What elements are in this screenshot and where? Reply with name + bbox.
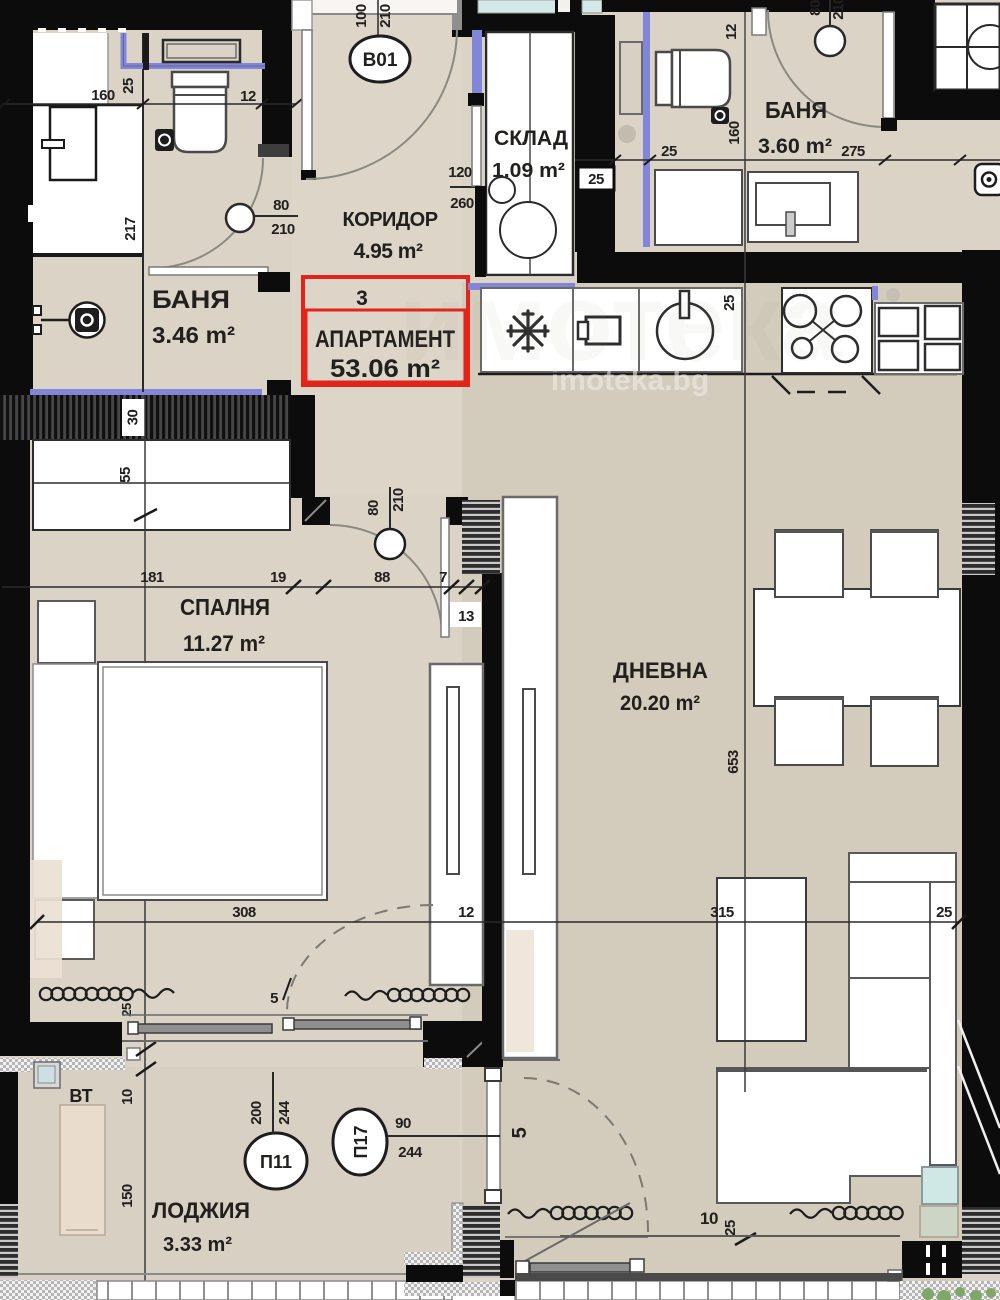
- svg-text:4.95 m²: 4.95 m²: [354, 240, 423, 263]
- svg-text:СКЛАД: СКЛАД: [494, 127, 568, 150]
- svg-text:10: 10: [700, 1209, 718, 1228]
- svg-text:B01: B01: [363, 50, 398, 71]
- svg-text:7: 7: [439, 569, 447, 586]
- svg-text:30: 30: [124, 410, 141, 426]
- svg-text:3.60 m²: 3.60 m²: [758, 135, 832, 158]
- svg-text:5: 5: [509, 1127, 531, 1138]
- svg-text:210: 210: [830, 0, 847, 20]
- svg-text:210: 210: [271, 221, 295, 238]
- svg-text:3.33 m²: 3.33 m²: [163, 1234, 232, 1256]
- svg-text:П17: П17: [351, 1126, 371, 1159]
- svg-text:210: 210: [390, 488, 407, 512]
- svg-text:11.27 m²: 11.27 m²: [183, 631, 265, 656]
- svg-text:КОРИДОР: КОРИДОР: [342, 209, 437, 231]
- svg-text:244: 244: [398, 1144, 423, 1161]
- svg-text:315: 315: [710, 904, 734, 921]
- svg-text:210: 210: [377, 4, 394, 28]
- svg-text:25: 25: [588, 171, 604, 188]
- svg-text:БАНЯ: БАНЯ: [152, 286, 230, 314]
- svg-text:25: 25: [722, 1220, 739, 1236]
- svg-text:100: 100: [353, 4, 370, 28]
- svg-text:5: 5: [270, 990, 278, 1007]
- svg-text:12: 12: [723, 24, 740, 40]
- svg-text:25: 25: [120, 78, 137, 94]
- svg-text:80: 80: [365, 500, 382, 516]
- svg-text:160: 160: [91, 87, 115, 104]
- svg-text:БАНЯ: БАНЯ: [765, 97, 827, 123]
- svg-text:80: 80: [807, 0, 824, 16]
- svg-text:90: 90: [395, 1115, 411, 1132]
- svg-text:275: 275: [841, 143, 865, 160]
- svg-text:ДНЕВНА: ДНЕВНА: [613, 658, 708, 683]
- svg-text:3: 3: [356, 287, 368, 310]
- svg-text:3.46 m²: 3.46 m²: [152, 322, 235, 348]
- svg-text:10: 10: [119, 1089, 136, 1105]
- svg-text:25: 25: [661, 143, 677, 160]
- svg-text:13: 13: [458, 608, 474, 625]
- svg-text:imoteka.bg: imoteka.bg: [551, 364, 709, 397]
- svg-text:12: 12: [240, 88, 256, 105]
- svg-text:80: 80: [273, 197, 289, 214]
- svg-text:ВТ: ВТ: [69, 1086, 92, 1106]
- svg-text:217: 217: [122, 217, 139, 241]
- svg-text:150: 150: [119, 1184, 136, 1208]
- svg-text:244: 244: [276, 1100, 293, 1125]
- svg-text:П11: П11: [260, 1152, 292, 1172]
- svg-text:25: 25: [936, 904, 952, 921]
- svg-text:260: 260: [450, 195, 474, 212]
- svg-text:200: 200: [248, 1101, 265, 1125]
- svg-text:ЛОДЖИЯ: ЛОДЖИЯ: [152, 1198, 250, 1223]
- svg-text:181: 181: [140, 569, 164, 586]
- svg-text:653: 653: [725, 750, 742, 774]
- svg-text:19: 19: [270, 569, 286, 586]
- svg-text:12: 12: [458, 904, 474, 921]
- svg-text:СПАЛНЯ: СПАЛНЯ: [180, 594, 270, 620]
- svg-text:20.20 m²: 20.20 m²: [620, 692, 700, 715]
- svg-text:160: 160: [726, 121, 743, 145]
- svg-text:308: 308: [232, 904, 256, 921]
- svg-text:55: 55: [117, 467, 134, 483]
- svg-text:120: 120: [448, 164, 472, 181]
- svg-text:88: 88: [374, 569, 390, 586]
